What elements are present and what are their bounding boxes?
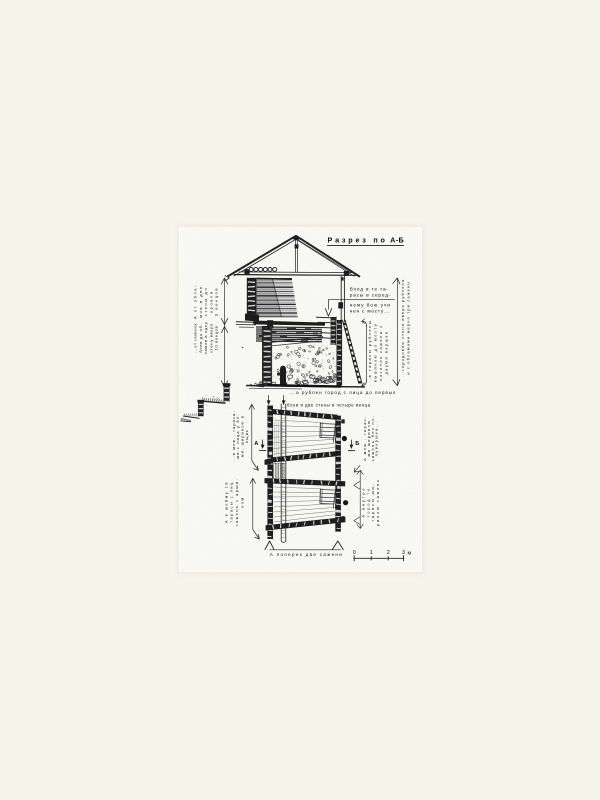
- svg-text:А: А: [254, 441, 258, 447]
- svg-text:...а рублен город с лица до пе: ...а рублен город с лица до первых: [290, 390, 397, 395]
- svg-text:ном: ном: [241, 496, 245, 507]
- svg-text:вышиною до мосту: вышиною до мосту: [372, 323, 377, 383]
- svg-text:город те: город те: [366, 487, 370, 517]
- svg-text:0: 0: [353, 550, 356, 556]
- svg-text:...в тарасы рублены: ...в тарасы рублены: [367, 320, 372, 386]
- svg-text:риною сажень: риною сажень: [376, 478, 380, 526]
- svg-text:Вход в те та-: Вход в те та-: [350, 287, 389, 292]
- svg-text:Б: Б: [355, 441, 359, 447]
- svg-text:расы в серед-: расы в серед-: [350, 293, 391, 298]
- svg-text:А внутре: А внутре: [361, 487, 365, 518]
- svg-text:ламов в одну: ламов в одну: [203, 321, 208, 354]
- svg-text:Р а з р е з п о А-Б: Р а з р е з п о А-Б: [328, 236, 405, 245]
- svg-text:нен с мосту...: нен с мосту...: [350, 308, 390, 313]
- svg-text:стены до: стены до: [203, 287, 208, 317]
- svg-text:мов в две: мов в две: [198, 285, 203, 318]
- svg-text:тарасы с лиц: тарасы с лиц: [230, 481, 234, 522]
- svg-text:м: м: [408, 551, 412, 557]
- svg-text:кровли: кровли: [208, 290, 213, 312]
- svg-text:1: 1: [370, 550, 373, 556]
- svg-text:двумя вершки: двумя вершки: [384, 330, 389, 374]
- svg-text:боев до об-: боев до об-: [198, 323, 203, 352]
- svg-text:ми с лица у бо-: ми с лица у бо-: [236, 413, 240, 458]
- svg-text:...в меж., тараса-: ...в меж., тараса-: [232, 410, 236, 462]
- svg-text:нему бою учи: нему бою учи: [350, 302, 391, 307]
- svg-text:А от обла-: А от обла-: [193, 284, 198, 319]
- svg-text:и с обламами мерно три сажени: и с обламами мерно три сажени: [406, 281, 411, 375]
- svg-text:сажень с арши-: сажень с арши-: [235, 478, 239, 527]
- svg-text:3: 3: [402, 550, 405, 556]
- svg-text:тарасы ши-: тарасы ши-: [371, 482, 375, 521]
- svg-text:лувершка...: лувершка...: [375, 420, 379, 457]
- svg-text:9 венцов: 9 венцов: [214, 287, 219, 316]
- svg-text:ми, шириною в: ми, шириною в: [241, 415, 245, 457]
- svg-text:2: 2: [387, 550, 390, 556]
- svg-text:10 венцов: 10 венцов: [214, 326, 219, 351]
- svg-text:...городовая стена вверх рубле: ...городовая стена вверх рублена: [400, 279, 405, 378]
- svg-text:А поперек две сажени: А поперек две сажени: [270, 552, 343, 557]
- svg-text:ящик: ящик: [245, 429, 249, 443]
- svg-text:А в шейму 18: А в шейму 18: [224, 481, 228, 523]
- svg-text:потолок сажени с: потолок сажени с: [378, 324, 383, 380]
- svg-text:...от нижних: ...от нижних: [193, 323, 198, 353]
- svg-text:стену вверх: стену вверх: [208, 323, 213, 353]
- svg-text:боев в две стены в четыре венц: боев в две стены в четыре венца: [287, 402, 371, 407]
